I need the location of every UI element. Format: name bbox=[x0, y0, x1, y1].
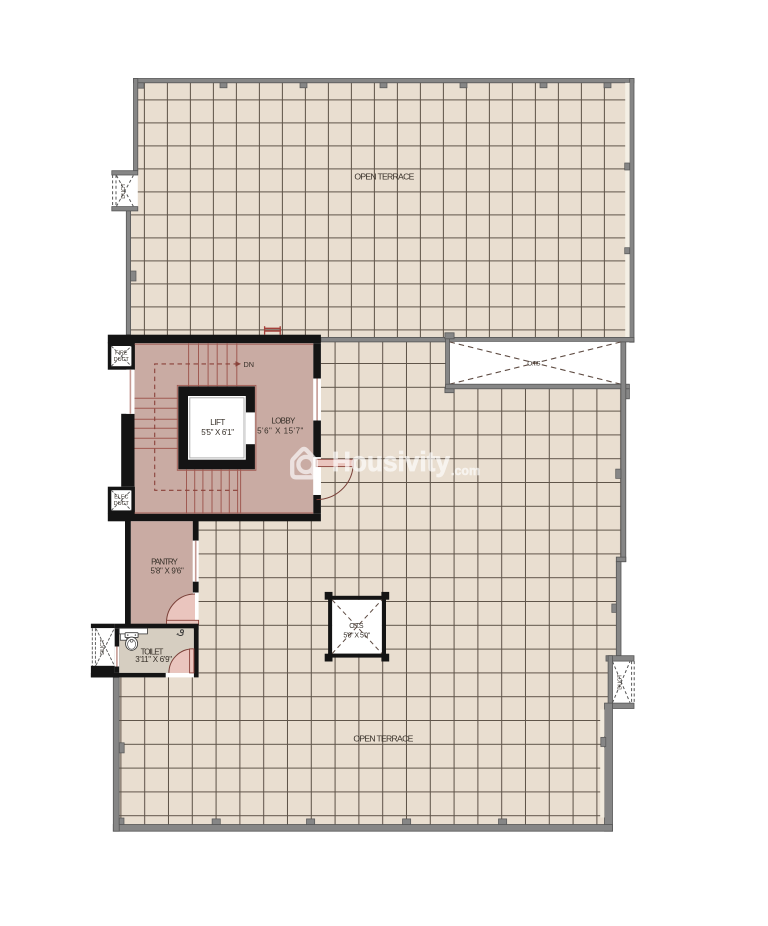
svg-text:OPEN TERRACE: OPEN TERRACE bbox=[353, 733, 413, 743]
svg-text:O.T.S: O.T.S bbox=[527, 361, 541, 368]
svg-text:OPEN TERRACE: OPEN TERRACE bbox=[354, 172, 414, 182]
svg-text:LIFT: LIFT bbox=[210, 418, 225, 427]
svg-text:DUCT: DUCT bbox=[114, 501, 130, 507]
svg-text:O.T.S: O.T.S bbox=[349, 623, 364, 630]
svg-text:PANTRY: PANTRY bbox=[151, 558, 178, 567]
svg-text:5'6" X 15'7": 5'6" X 15'7" bbox=[257, 427, 304, 436]
svg-text:DUCT: DUCT bbox=[114, 357, 130, 363]
svg-text:DUCT: DUCT bbox=[100, 639, 106, 655]
svg-text:5'5" X 6'1": 5'5" X 6'1" bbox=[201, 428, 234, 437]
svg-text:FIRE: FIRE bbox=[115, 351, 128, 357]
svg-text:5'0" X 5'0": 5'0" X 5'0" bbox=[343, 633, 370, 640]
svg-text:LOBBY: LOBBY bbox=[271, 417, 296, 426]
svg-text:DUCT: DUCT bbox=[618, 674, 624, 690]
svg-text:.com: .com bbox=[451, 463, 480, 478]
svg-text:DUCT: DUCT bbox=[121, 183, 127, 199]
svg-text:DN: DN bbox=[244, 360, 255, 369]
svg-text:Housivity: Housivity bbox=[332, 446, 451, 477]
svg-text:3'11" X 6'9": 3'11" X 6'9" bbox=[135, 655, 172, 664]
svg-text:ELEC: ELEC bbox=[114, 495, 128, 501]
svg-text:5'8" X 9'6": 5'8" X 9'6" bbox=[150, 567, 183, 576]
